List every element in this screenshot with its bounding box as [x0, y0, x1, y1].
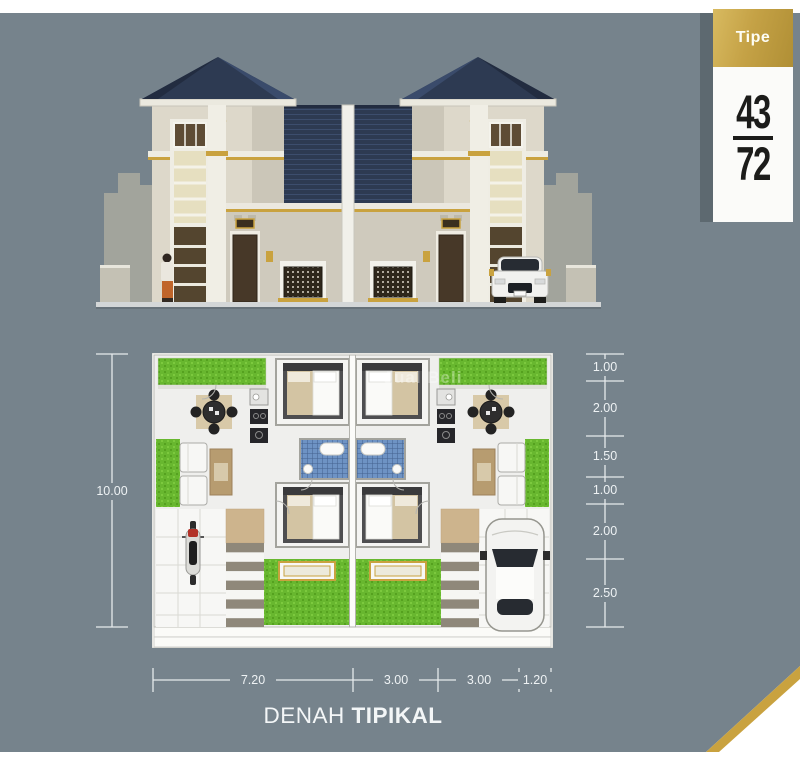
type-label: Tipe: [736, 29, 771, 47]
plan-house-unit: [154, 355, 351, 627]
title-word-denah: DENAH: [263, 703, 344, 728]
party-wall: [342, 105, 354, 305]
dim-right-seg-1: 1.00: [581, 359, 629, 376]
car-top-view: [480, 519, 550, 631]
dim-right-seg-4: 1.00: [581, 482, 629, 499]
dim-left-total: 10.00: [87, 483, 137, 500]
drawing-title: DENAH TIPIKAL: [152, 703, 554, 729]
car-front: [489, 257, 551, 303]
ribbon-shadow: [700, 13, 713, 222]
property-brochure: Jual Beli 10.00 1.00 2.00 1.50 1.00 2.00…: [0, 0, 800, 769]
dim-bottom-seg-1: 7.20: [230, 672, 276, 689]
watermark: Jual Beli: [348, 368, 498, 388]
type-numbers: 43 72: [713, 91, 793, 185]
dim-bottom-seg-2: 3.00: [373, 672, 419, 689]
dim-right-seg-2: 2.00: [581, 400, 629, 417]
dim-bottom-seg-3: 3.00: [456, 672, 502, 689]
type-numerator: 43: [725, 91, 781, 132]
type-denominator: 72: [725, 143, 781, 184]
dim-right-seg-3: 1.50: [581, 448, 629, 465]
dim-bottom-seg-4: 1.20: [518, 672, 552, 689]
ground-line: [96, 302, 601, 307]
floor-plan: [152, 353, 553, 648]
dim-right-seg-6: 2.50: [581, 585, 629, 602]
type-ribbon-header: Tipe: [713, 9, 793, 67]
center-divider-wall: [350, 355, 356, 627]
dim-right-seg-5: 2.00: [581, 523, 629, 540]
elevation-drawing: [96, 55, 601, 310]
elevation-house-unit: [100, 57, 342, 305]
bed-top: [283, 363, 343, 419]
bed-bottom: [283, 487, 343, 543]
corner-wedge: [698, 660, 800, 752]
dining-set: [191, 390, 238, 435]
title-word-tipikal: TIPIKAL: [352, 703, 443, 728]
kitchen-counter: [250, 389, 268, 443]
type-ribbon: Tipe 43 72: [713, 9, 793, 222]
